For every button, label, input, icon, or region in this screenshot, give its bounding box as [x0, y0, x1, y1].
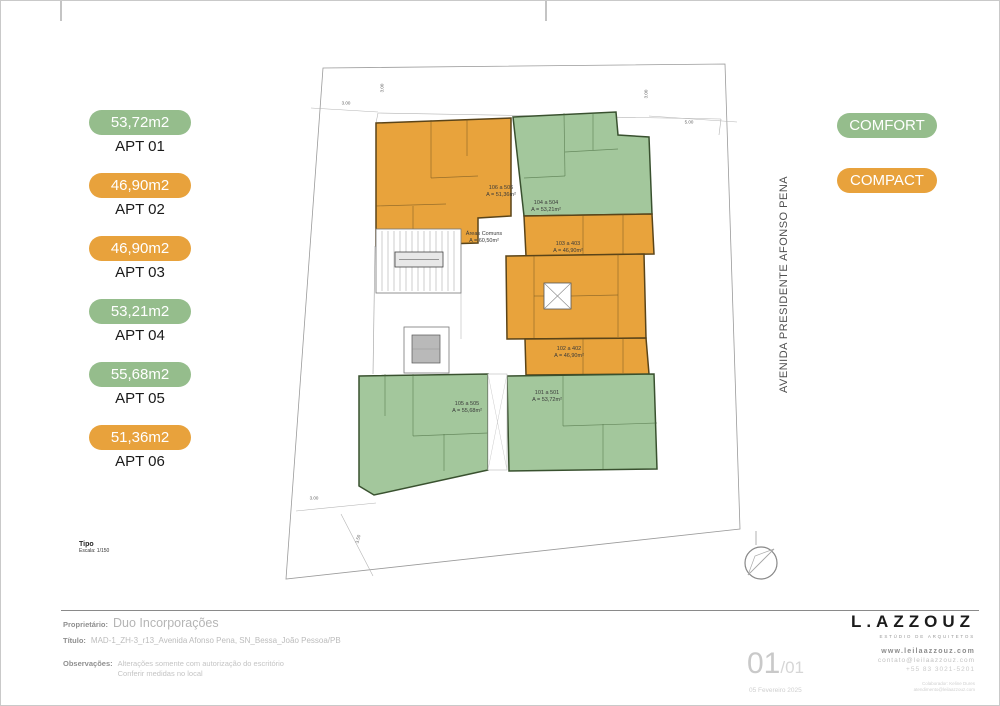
- legend-apt-04: 53,21m2 APT 04: [89, 299, 191, 344]
- legend-apt-02: 46,90m2 APT 02: [89, 173, 191, 218]
- crop-mark-right: [545, 1, 547, 21]
- area-badge: 55,68m2: [89, 362, 191, 387]
- unit-103-polygon: [524, 214, 654, 256]
- unit-101-polygon: [507, 374, 657, 471]
- apt-name: APT 06: [89, 453, 191, 470]
- area-badge: 46,90m2: [89, 173, 191, 198]
- unit-id: 102 a 402: [554, 346, 584, 353]
- unit-area: A = 53,21m²: [531, 207, 561, 214]
- unit-id: 101 a 501: [532, 390, 562, 397]
- apt-name: APT 03: [89, 264, 191, 281]
- legend-apt-01: 53,72m2 APT 01: [89, 110, 191, 155]
- common-area-label: Áreas Comuns A = 60,50m²: [466, 231, 502, 245]
- unit-label-103: 103 a 403 A = 46,90m²: [553, 241, 583, 255]
- brand-subtitle: ESTÚDIO DE ARQUITETOS: [851, 634, 975, 639]
- crop-mark-left: [60, 1, 62, 21]
- unit-105-polygon: [359, 374, 488, 495]
- elevator-shaft: [544, 283, 571, 309]
- notes-row: Observações: Alterações somente com auto…: [63, 659, 284, 679]
- dim-top-left-h: 3.00: [342, 101, 351, 106]
- brand-contact-2: atendimento@leilaazzouz.com: [851, 687, 975, 692]
- area-badge: 53,21m2: [89, 299, 191, 324]
- elevator: [404, 327, 449, 373]
- unit-id: 103 a 403: [553, 241, 583, 248]
- unit-label-105: 105 a 505 A = 55,68m²: [452, 401, 482, 415]
- area-badge: 46,90m2: [89, 236, 191, 261]
- unit-102-polygon: [525, 338, 649, 375]
- plan-scale-label: Escala: 1/150: [79, 548, 109, 554]
- unit-area: A = 46,90m²: [553, 248, 583, 255]
- area-badge: 53,72m2: [89, 110, 191, 135]
- unit-label-104: 104 a 504 A = 53,21m²: [531, 200, 561, 214]
- staircase: [376, 229, 461, 293]
- apt-name: APT 05: [89, 390, 191, 407]
- lobby-edge: [373, 246, 375, 374]
- brand-phone: +55 83 3021-5201: [851, 666, 975, 673]
- common-area-name: Áreas Comuns: [466, 231, 502, 238]
- brand-website: www.leilaazzouz.com: [851, 648, 975, 655]
- owner-value: Duo Incorporações: [113, 616, 219, 630]
- footer-divider: [61, 610, 979, 611]
- unit-id: 105 a 505: [452, 401, 482, 408]
- unit-area: A = 55,68m²: [452, 408, 482, 415]
- corridor-x-brace: [488, 374, 507, 470]
- scale-note: Tipo Escala: 1/150: [79, 541, 109, 554]
- floor-plan-drawing: [281, 56, 751, 601]
- unit-area: A = 46,90m²: [554, 353, 584, 360]
- comfort-type-badge: COMFORT: [837, 113, 937, 138]
- title-value: MAD-1_ZH-3_r13_Avenida Afonso Pena, SN_B…: [91, 636, 341, 645]
- legend-apt-05: 55,68m2 APT 05: [89, 362, 191, 407]
- owner-row: Proprietário: Duo Incorporações: [63, 616, 219, 630]
- legend-apt-06: 51,36m2 APT 06: [89, 425, 191, 470]
- unit-label-101: 101 a 501 A = 53,72m²: [532, 390, 562, 404]
- apt-name: APT 04: [89, 327, 191, 344]
- unit-area: A = 53,72m²: [532, 397, 562, 404]
- dim-top-left-v: 3.00: [380, 84, 385, 93]
- common-area-value: A = 60,50m²: [466, 238, 502, 245]
- legend-apt-03: 46,90m2 APT 03: [89, 236, 191, 281]
- unit-id: 106 a 506: [486, 185, 516, 192]
- title-label: Título:: [63, 636, 86, 645]
- dim-bottom-left-h: 3.00: [310, 496, 319, 501]
- unit-label-102: 102 a 402 A = 46,90m²: [554, 346, 584, 360]
- north-arrow-icon: [734, 527, 790, 589]
- unit-106-polygon: [376, 118, 511, 246]
- unit-area: A = 51,36m²: [486, 192, 516, 199]
- area-badge: 51,36m2: [89, 425, 191, 450]
- notes-line-2: Conferir medidas no local: [118, 669, 284, 679]
- floor-plan: 106 a 506 A = 51,36m² 104 a 504 A = 53,2…: [281, 56, 751, 601]
- brand-collaborator: Colaborador: Keline Dures: [851, 681, 975, 686]
- sheet-date: 05 Fevereiro 2025: [749, 687, 802, 694]
- apt-name: APT 01: [89, 138, 191, 155]
- dimension-lines: [296, 108, 737, 576]
- plan-type-label: Tipo: [79, 541, 109, 548]
- page-number: 01 /01: [747, 647, 804, 681]
- street-label: AVENIDA PRESIDENTE AFONSO PENA: [772, 179, 796, 393]
- drawing-sheet: 53,72m2 APT 01 46,90m2 APT 02 46,90m2 AP…: [0, 0, 1000, 706]
- apt-name: APT 02: [89, 201, 191, 218]
- notes-label: Observações:: [63, 659, 113, 668]
- compact-type-badge: COMPACT: [837, 168, 937, 193]
- owner-label: Proprietário:: [63, 620, 108, 629]
- core-polygon: [506, 254, 646, 339]
- architect-brand-block: L.AZZOUZ ESTÚDIO DE ARQUITETOS www.leila…: [851, 612, 975, 692]
- brand-email: contato@leilaazzouz.com: [851, 657, 975, 664]
- brand-logo-text: L.AZZOUZ: [851, 612, 975, 632]
- dim-right-h: 5.00: [685, 120, 694, 125]
- notes-value: Alterações somente com autorização do es…: [118, 659, 284, 679]
- page-current: 01: [747, 647, 780, 681]
- notes-line-1: Alterações somente com autorização do es…: [118, 659, 284, 669]
- unit-id: 104 a 504: [531, 200, 561, 207]
- unit-label-106: 106 a 506 A = 51,36m²: [486, 185, 516, 199]
- page-total: /01: [780, 658, 804, 678]
- title-row: Título: MAD-1_ZH-3_r13_Avenida Afonso Pe…: [63, 636, 341, 645]
- dim-top-right-v: 3.00: [644, 90, 649, 99]
